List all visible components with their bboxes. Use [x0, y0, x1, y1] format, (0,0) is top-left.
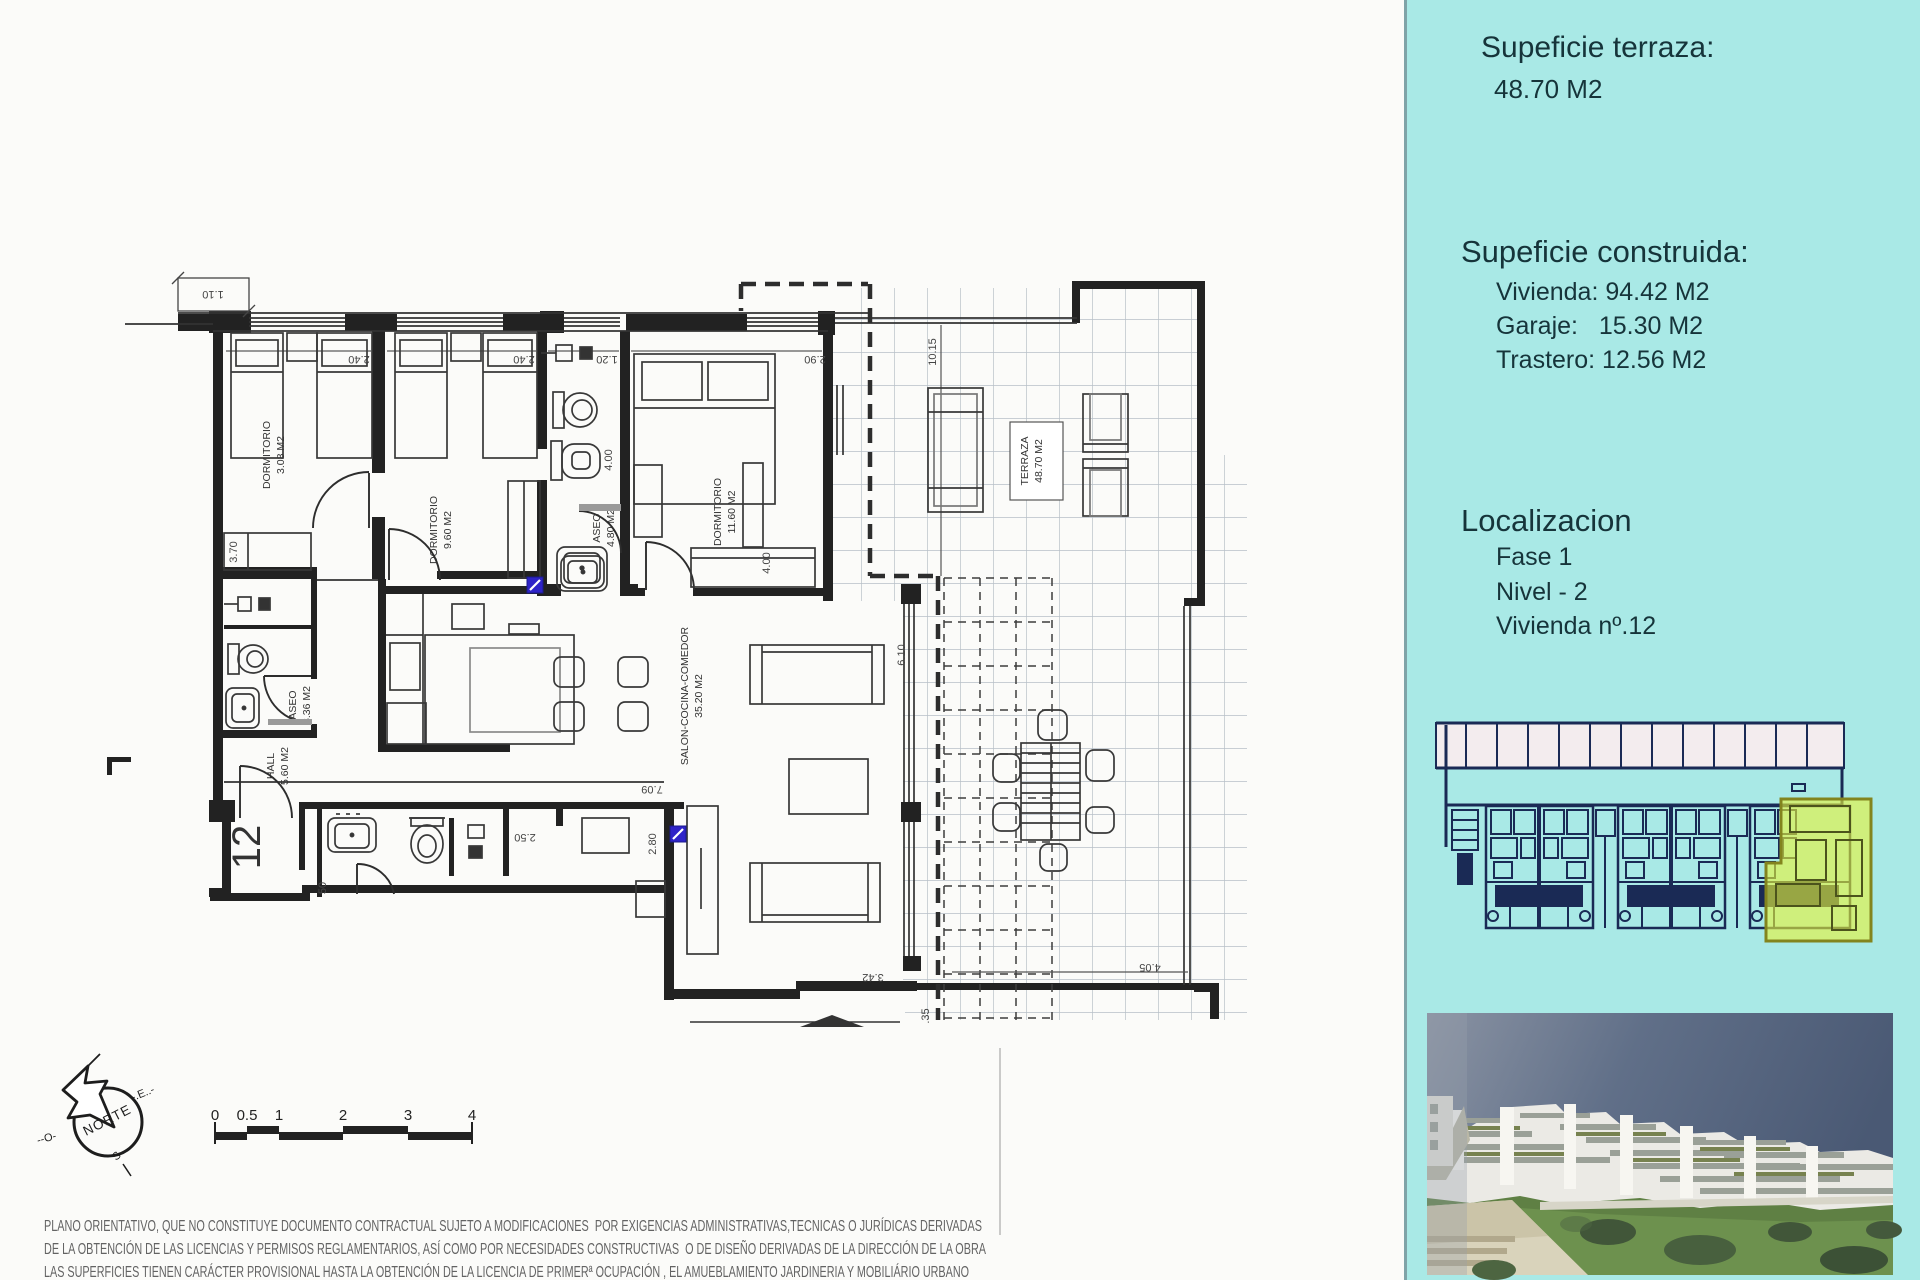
svg-text:50: 50	[317, 882, 329, 894]
svg-text:3: 3	[404, 1107, 412, 1124]
svg-text:2: 2	[339, 1107, 347, 1124]
svg-text:3.42: 3.42	[862, 971, 883, 983]
svg-text:.35: .35	[920, 1008, 932, 1023]
svg-text:SALON-COCINA-COMEDOR: SALON-COCINA-COMEDOR	[679, 626, 691, 765]
svg-text:4.05: 4.05	[1139, 961, 1160, 973]
svg-text:Nivel - 2: Nivel - 2	[1496, 578, 1588, 606]
svg-text:ASEO: ASEO	[287, 690, 299, 719]
svg-text:48.70 M2: 48.70 M2	[1494, 74, 1602, 104]
svg-text:4: 4	[468, 1107, 476, 1124]
svg-text:DE LA OBTENCIÓN DE LAS LICENCI: DE LA OBTENCIÓN DE LAS LICENCIAS Y PERMI…	[44, 1238, 986, 1258]
svg-text:2.80: 2.80	[647, 833, 659, 854]
svg-text:3.70: 3.70	[228, 541, 240, 562]
svg-text:48.70 M2: 48.70 M2	[1033, 439, 1045, 483]
svg-text:1.20: 1.20	[596, 353, 617, 365]
svg-text:1: 1	[275, 1107, 283, 1124]
svg-text:5.60 M2: 5.60 M2	[279, 747, 291, 785]
svg-text:DORMITORIO: DORMITORIO	[712, 478, 724, 546]
svg-text:7.09: 7.09	[641, 783, 662, 795]
svg-text:35.20 M2: 35.20 M2	[693, 674, 705, 718]
svg-text:2.50: 2.50	[514, 831, 535, 843]
svg-text:PLANO ORIENTATIVO, QUE NO CONS: PLANO ORIENTATIVO, QUE NO CONSTITUYE DOC…	[44, 1216, 982, 1235]
svg-text:1.10: 1.10	[202, 288, 223, 300]
svg-text:Vivienda nº.12: Vivienda nº.12	[1496, 612, 1656, 640]
svg-text:Supeficie construida:: Supeficie construida:	[1461, 234, 1749, 269]
svg-text:Localizacion: Localizacion	[1461, 503, 1632, 538]
svg-text:11.60 M2: 11.60 M2	[726, 490, 738, 533]
svg-text:4.00: 4.00	[603, 449, 615, 470]
svg-text:Vivienda: 94.42 M2: Vivienda: 94.42 M2	[1496, 278, 1710, 306]
svg-text:Trastero: 12.56 M2: Trastero: 12.56 M2	[1496, 346, 1706, 374]
svg-text:10.15: 10.15	[927, 338, 939, 366]
svg-text:LAS SUPERFICIES TIENEN CARÁCTE: LAS SUPERFICIES TIENEN CARÁCTER PROVISIO…	[44, 1262, 969, 1280]
svg-text:3.36 M2: 3.36 M2	[301, 686, 313, 724]
svg-text:3.08 M2: 3.08 M2	[275, 436, 287, 474]
svg-text:DORMITORIO: DORMITORIO	[261, 421, 273, 489]
svg-text:2.90: 2.90	[804, 353, 825, 365]
svg-text:0.5: 0.5	[237, 1107, 258, 1124]
svg-text:12: 12	[225, 825, 269, 870]
svg-text:9.60 M2: 9.60 M2	[442, 511, 454, 549]
svg-text:6.10: 6.10	[896, 644, 908, 665]
svg-text:Fase 1: Fase 1	[1496, 543, 1572, 571]
svg-text:TERRAZA: TERRAZA	[1019, 436, 1031, 485]
svg-text:4.80 M2: 4.80 M2	[605, 509, 617, 547]
svg-text:4.00: 4.00	[761, 552, 773, 573]
svg-text:Supeficie terraza:: Supeficie terraza:	[1481, 31, 1714, 64]
svg-text:0: 0	[211, 1107, 219, 1124]
svg-text:Garaje: 15.30 M2: Garaje: 15.30 M2	[1496, 312, 1703, 340]
